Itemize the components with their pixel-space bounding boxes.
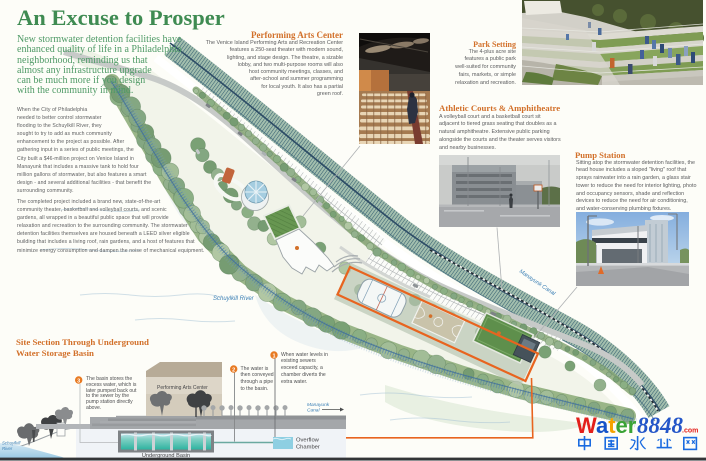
svg-text:Manayunk: Manayunk bbox=[307, 402, 330, 408]
svg-text:2: 2 bbox=[232, 367, 235, 373]
svg-text:River: River bbox=[2, 446, 13, 451]
svg-text:Schuylkill: Schuylkill bbox=[2, 441, 21, 446]
svg-text:8848: 8848 bbox=[637, 413, 684, 438]
svg-text:Schuylkill River: Schuylkill River bbox=[213, 296, 255, 302]
svg-text:Performing Arts Center: Performing Arts Center bbox=[157, 385, 208, 391]
svg-text:3: 3 bbox=[77, 378, 80, 384]
svg-text:Water: Water bbox=[576, 413, 637, 438]
svg-text:.com: .com bbox=[682, 428, 698, 435]
svg-text:Overflow: Overflow bbox=[296, 438, 320, 444]
svg-text:Canal: Canal bbox=[307, 408, 320, 414]
svg-text:1: 1 bbox=[272, 353, 275, 359]
svg-text:Chamber: Chamber bbox=[296, 445, 320, 451]
